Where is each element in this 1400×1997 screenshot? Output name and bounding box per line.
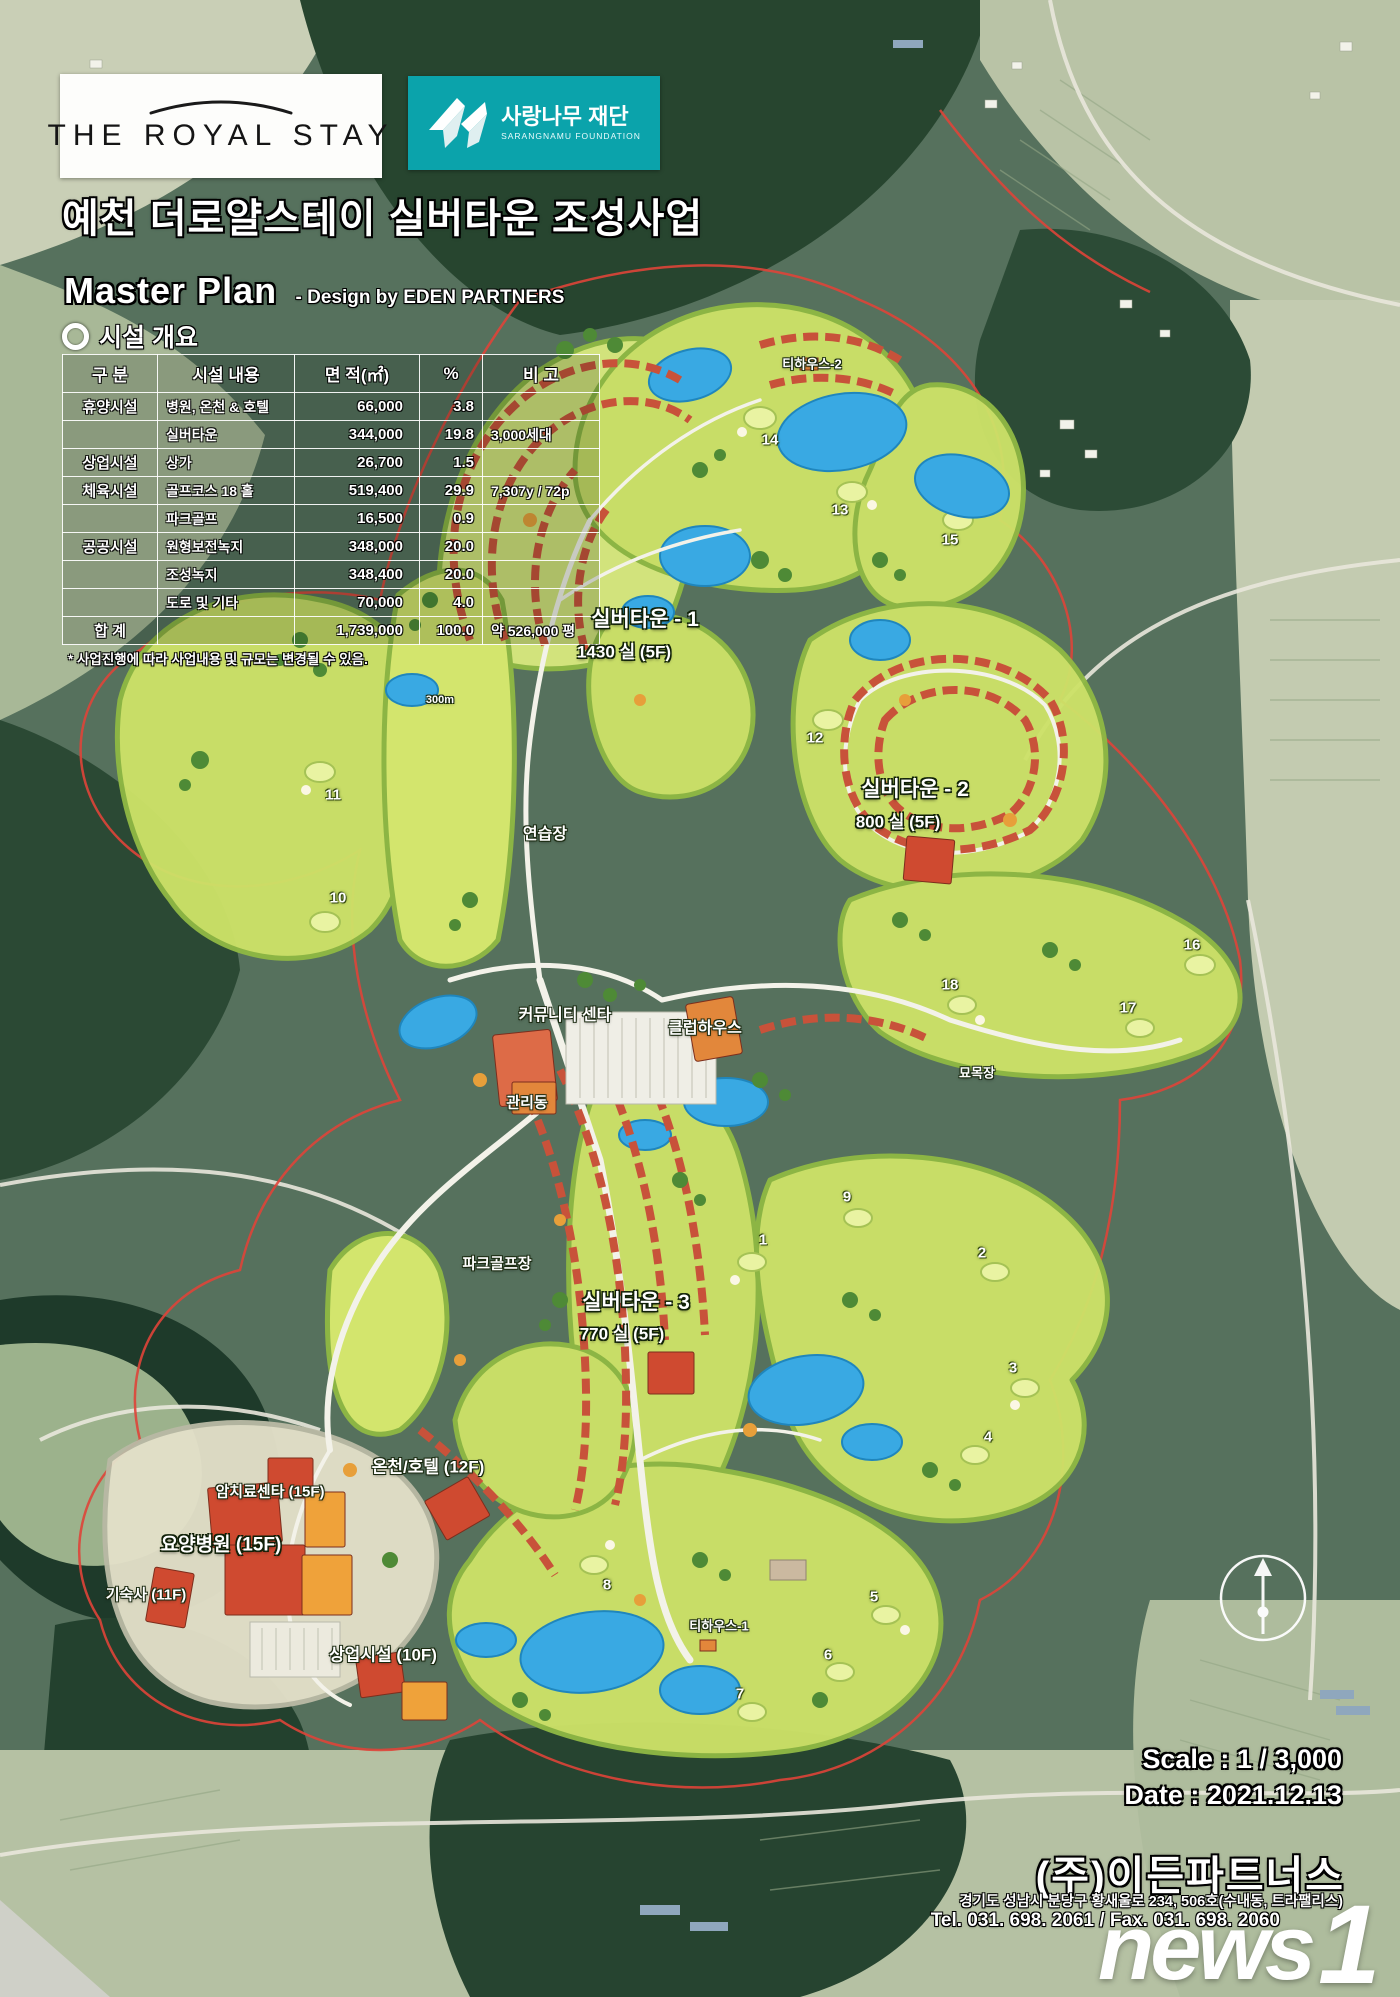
table-row: 합 계1,739,000100.0약 526,000 평 (63, 617, 600, 645)
commercial-label: 상업시설 (10F) (329, 1641, 437, 1666)
table-cell: 348,000 (295, 533, 420, 561)
table-row: 체육시설골프코스 18 홀519,40029.97,307y / 72p (63, 477, 600, 505)
foundation-mark-icon (427, 96, 489, 150)
table-cell (158, 617, 295, 645)
hole-number-17: 17 (1120, 1000, 1137, 1017)
dormitory-label: 기숙사 (11F) (106, 1584, 187, 1605)
facility-table-header-row: 구 분시설 내용면 적(㎡)%비 고 (63, 355, 600, 393)
table-cell: 도로 및 기타 (158, 589, 295, 617)
table-cell: 공공시설 (63, 533, 158, 561)
table-cell: 29.9 (420, 477, 483, 505)
hole-number-14: 14 (762, 432, 779, 449)
table-footnote: * 사업진행에 따라 사업내용 및 규모는 변경될 수 있음. (68, 648, 368, 668)
master-plan-line: Master Plan - Design by EDEN PARTNERS (64, 270, 564, 312)
table-cell: 3.8 (420, 393, 483, 421)
hole-number-18: 18 (942, 977, 959, 994)
table-cell: 19.8 (420, 421, 483, 449)
table-row: 조성녹지348,40020.0 (63, 561, 600, 589)
table-cell (483, 533, 600, 561)
facility-section-header: 시설 개요 (62, 318, 198, 354)
page-title: 예천 더로얄스테이 실버타운 조성사업 (62, 186, 703, 244)
table-cell: 519,400 (295, 477, 420, 505)
table-cell: 0.9 (420, 505, 483, 533)
table-cell: 26,700 (295, 449, 420, 477)
hole-number-8: 8 (603, 1577, 611, 1594)
table-cell: 1,739,000 (295, 617, 420, 645)
table-cell: 16,500 (295, 505, 420, 533)
facility-section-title: 시설 개요 (99, 318, 198, 354)
foundation-name: 사랑나무 재단 (501, 105, 641, 129)
hole-number-3: 3 (1009, 1360, 1017, 1377)
silvertown-2-label: 실버타운 - 2 (861, 773, 969, 803)
facility-col-header-0: 구 분 (63, 355, 158, 393)
compass-icon (1215, 1550, 1311, 1646)
table-cell: 휴양시설 (63, 393, 158, 421)
table-cell: 조성녹지 (158, 561, 295, 589)
table-cell (63, 561, 158, 589)
clubhouse-label: 클럽하우스 (668, 1014, 742, 1038)
hole-number-6: 6 (824, 1647, 832, 1664)
table-cell (483, 505, 600, 533)
hole-number-12: 12 (807, 730, 824, 747)
hole-number-4: 4 (984, 1429, 992, 1446)
silvertown-3-units: 770 실 (5F) (580, 1320, 665, 1345)
table-row: 도로 및 기타70,0004.0 (63, 589, 600, 617)
hole-number-10: 10 (330, 890, 347, 907)
table-cell: 파크골프 (158, 505, 295, 533)
watermark-news-text: news (1098, 1912, 1312, 1986)
brand-title: THE ROYAL STAY (48, 119, 395, 153)
facility-col-header-1: 시설 내용 (158, 355, 295, 393)
royal-stay-logo: THE ROYAL STAY (60, 74, 382, 178)
teahouse-1-label: 티하우스-1 (689, 1616, 748, 1635)
table-cell: 20.0 (420, 533, 483, 561)
table-cell (483, 589, 600, 617)
arc-icon (146, 99, 296, 117)
nursery-label: 묘목장 (959, 1063, 995, 1082)
hole-number-7: 7 (736, 1686, 744, 1703)
cancer-center-label: 암치료센타 (15F) (215, 1481, 324, 1502)
table-row: 공공시설원형보전녹지348,00020.0 (63, 533, 600, 561)
table-row: 휴양시설병원, 온천 & 호텔66,0003.8 (63, 393, 600, 421)
watermark-one-glyph: 1 (1318, 1905, 1380, 1986)
facility-col-header-3: % (420, 355, 483, 393)
hole-number-5: 5 (870, 1589, 878, 1606)
table-cell: 348,400 (295, 561, 420, 589)
table-cell: 상업시설 (63, 449, 158, 477)
table-cell: 344,000 (295, 421, 420, 449)
table-cell: 골프코스 18 홀 (158, 477, 295, 505)
hole-number-9: 9 (843, 1189, 851, 1206)
master-plan-poster: THE ROYAL STAY 사랑나무 재단 SARANGNAMU FOUNDA… (0, 0, 1400, 1997)
news1-watermark: news 1 (1098, 1905, 1380, 1986)
table-cell: 4.0 (420, 589, 483, 617)
table-cell: 66,000 (295, 393, 420, 421)
foundation-subtitle: SARANGNAMU FOUNDATION (501, 132, 641, 141)
design-credit: - Design by EDEN PARTNERS (296, 287, 565, 308)
teahouse-2-label: 티하우스-2 (782, 354, 841, 373)
table-cell (63, 589, 158, 617)
nursing-hospital-label: 요양병원 (15F) (161, 1530, 282, 1557)
facility-col-header-4: 비 고 (483, 355, 600, 393)
table-cell: 100.0 (420, 617, 483, 645)
silvertown-1-label: 실버타운 - 1 (591, 603, 699, 633)
table-cell: 7,307y / 72p (483, 477, 600, 505)
hole-number-13: 13 (832, 502, 849, 519)
table-cell: 20.0 (420, 561, 483, 589)
table-cell: 70,000 (295, 589, 420, 617)
table-row: 파크골프16,5000.9 (63, 505, 600, 533)
table-row: 실버타운344,00019.83,000세대 (63, 421, 600, 449)
spa-hotel-label: 온천/호텔 (12F) (372, 1453, 485, 1478)
driving-range-label: 연습장 (523, 820, 567, 844)
hole-number-1: 1 (759, 1232, 767, 1249)
silvertown-3-label: 실버타운 - 3 (582, 1286, 690, 1316)
table-cell: 3,000세대 (483, 421, 600, 449)
table-cell (483, 561, 600, 589)
table-cell: 병원, 온천 & 호텔 (158, 393, 295, 421)
table-cell: 상가 (158, 449, 295, 477)
table-cell (483, 449, 600, 477)
facility-col-header-2: 면 적(㎡) (295, 355, 420, 393)
date-text: Date : 2021.12.13 (1124, 1780, 1342, 1811)
silvertown-2-units: 800 실 (5F) (856, 808, 941, 833)
bullet-icon (62, 323, 89, 350)
community-center-label: 커뮤니티 센타 (519, 1001, 612, 1025)
table-cell: 실버타운 (158, 421, 295, 449)
table-cell (63, 505, 158, 533)
park-golf-label: 파크골프장 (462, 1253, 531, 1274)
range-distance-label: 300m (426, 694, 454, 706)
master-plan-title: Master Plan (64, 270, 277, 311)
hole-number-2: 2 (978, 1245, 986, 1262)
table-cell (63, 421, 158, 449)
hole-number-11: 11 (325, 787, 341, 804)
facility-table: 구 분시설 내용면 적(㎡)%비 고 휴양시설병원, 온천 & 호텔66,000… (62, 354, 600, 645)
silvertown-1-units: 1430 실 (5F) (577, 638, 671, 663)
table-cell: 합 계 (63, 617, 158, 645)
foundation-logo: 사랑나무 재단 SARANGNAMU FOUNDATION (408, 76, 660, 170)
table-cell: 체육시설 (63, 477, 158, 505)
table-cell: 원형보전녹지 (158, 533, 295, 561)
table-cell (483, 393, 600, 421)
admin-building-label: 관리동 (506, 1092, 547, 1113)
table-cell: 1.5 (420, 449, 483, 477)
scale-text: Scale : 1 / 3,000 (1142, 1744, 1342, 1775)
table-row: 상업시설상가26,7001.5 (63, 449, 600, 477)
hole-number-16: 16 (1184, 937, 1201, 954)
hole-number-15: 15 (942, 532, 959, 549)
